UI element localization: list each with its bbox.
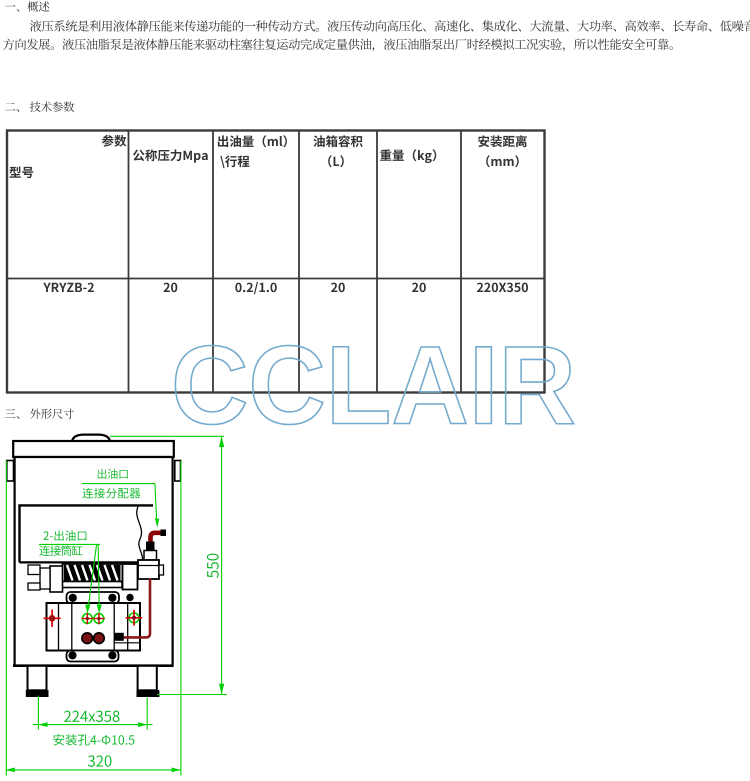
svg-text:CCLAIR: CCLAIR: [171, 324, 576, 448]
